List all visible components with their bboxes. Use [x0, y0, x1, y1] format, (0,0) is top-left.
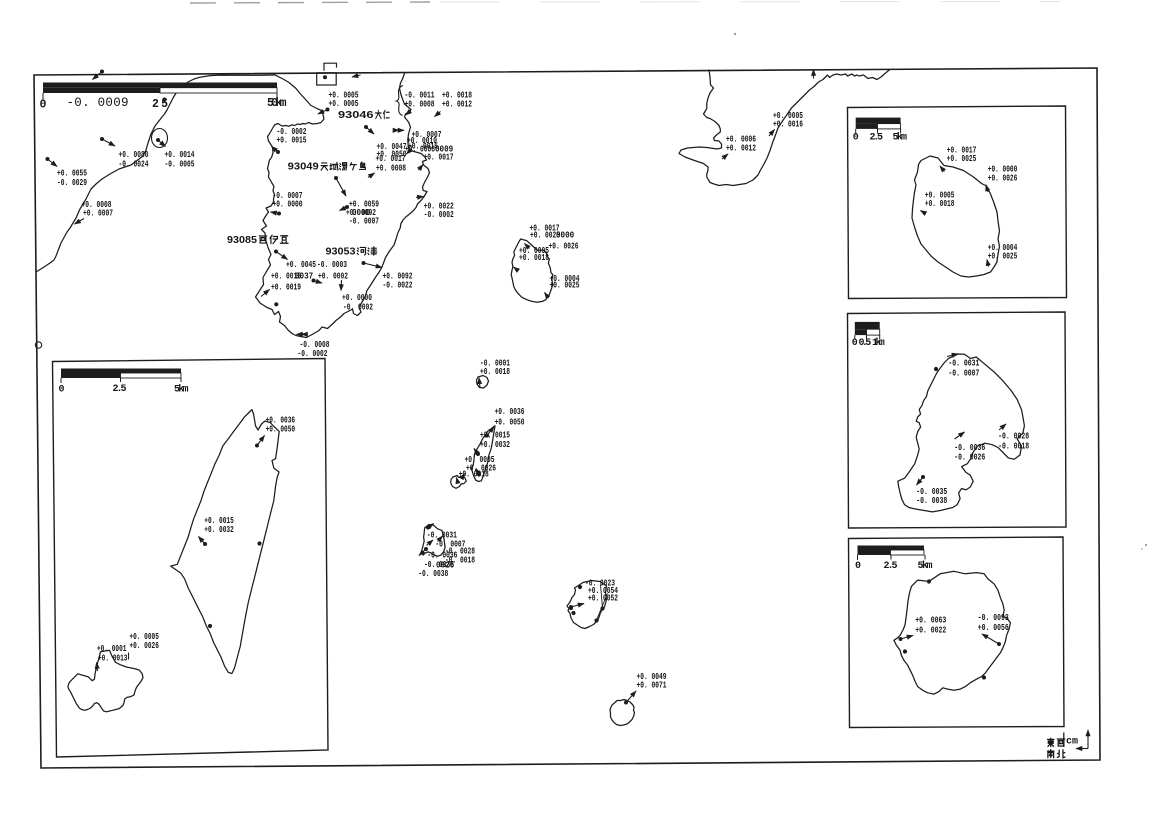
svg-text:+0. 0045: +0. 0045 [286, 259, 316, 270]
svg-text:-0. 0002: -0. 0002 [424, 209, 454, 220]
svg-text:-0. 0026: -0. 0026 [954, 452, 985, 463]
svg-text:+0. 0071: +0. 0071 [637, 680, 667, 691]
svg-text:+0. 0026: +0. 0026 [129, 640, 159, 651]
svg-text:+0. 0008: +0. 0008 [376, 163, 406, 174]
svg-text:+0. 0018: +0. 0018 [925, 198, 955, 209]
svg-text:-0. 0002: -0. 0002 [343, 302, 373, 313]
svg-text:+0. 0019: +0. 0019 [271, 282, 301, 293]
svg-text:93053: 93053 [326, 247, 356, 258]
svg-text:+0. 0025: +0. 0025 [947, 153, 977, 164]
svg-text:0: 0 [59, 385, 65, 396]
svg-text:-0. 0022: -0. 0022 [383, 280, 413, 291]
svg-text:-0. 0003: -0. 0003 [317, 259, 347, 270]
svg-text:+0. 0026: +0. 0026 [988, 173, 1018, 184]
svg-text:-0. 0009: -0. 0009 [67, 96, 129, 110]
svg-text:+0. 0012: +0. 0012 [726, 143, 756, 154]
svg-text:+0. 0032: +0. 0032 [480, 439, 510, 450]
svg-text:-0. 0038: -0. 0038 [418, 568, 448, 579]
svg-text:+0. 0050: +0. 0050 [495, 417, 525, 428]
svg-text:-0. 0018: -0. 0018 [998, 441, 1029, 452]
svg-text:2.5: 2.5 [870, 133, 884, 144]
svg-text:+0. 0025: +0. 0025 [550, 279, 580, 290]
svg-text:0037: 0037 [295, 271, 313, 282]
svg-text:+0. 0008: +0. 0008 [405, 98, 435, 109]
svg-text:93046: 93046 [338, 110, 374, 121]
svg-text:+0. 0050: +0. 0050 [266, 424, 296, 435]
svg-text:+0. 0017: +0. 0017 [424, 151, 454, 162]
svg-text:-0. 0007: -0. 0007 [349, 216, 379, 227]
svg-text:0: 0 [853, 133, 859, 144]
svg-text:0000: 0000 [556, 229, 574, 240]
svg-text:+0. 0032: +0. 0032 [204, 524, 234, 535]
svg-text:-0. 0002: -0. 0002 [298, 348, 328, 359]
svg-text:0: 0 [855, 561, 861, 572]
svg-text:50km: 50km [267, 97, 287, 110]
svg-text:+0. 0052: +0. 0052 [588, 593, 618, 604]
svg-text:+0. 0036: +0. 0036 [495, 406, 525, 417]
svg-text:2.5: 2.5 [113, 384, 127, 395]
svg-text:+0. 0000: +0. 0000 [273, 199, 303, 210]
svg-text:+0. 0018: +0. 0018 [459, 469, 489, 480]
svg-text:-0. 0038: -0. 0038 [916, 495, 947, 506]
svg-text:+0. 0056: +0. 0056 [978, 622, 1009, 633]
svg-text:+0. 0013: +0. 0013 [98, 653, 128, 664]
svg-text:5km: 5km [893, 132, 908, 144]
svg-text:+0. 0025: +0. 0025 [988, 251, 1018, 262]
svg-text:93049: 93049 [288, 162, 319, 173]
svg-text:cm: cm [1066, 737, 1078, 748]
svg-text:+0. 0016: +0. 0016 [773, 119, 803, 130]
svg-text:+0. 0026: +0. 0026 [549, 240, 579, 251]
svg-text:-0. 0005: -0. 0005 [165, 159, 195, 170]
svg-text:0: 0 [40, 99, 47, 112]
svg-text:-0. 0029: -0. 0029 [57, 177, 87, 188]
svg-text:+0. 0022: +0. 0022 [915, 624, 946, 635]
svg-text:+0. 0018: +0. 0018 [480, 366, 510, 377]
svg-text:-0. 0007: -0. 0007 [948, 368, 979, 379]
svg-text:+0. 0012: +0. 0012 [442, 98, 472, 109]
svg-text:93085: 93085 [227, 235, 257, 246]
svg-text:0 0.5 1km: 0 0.5 1km [852, 337, 885, 349]
svg-text:+0. 0007: +0. 0007 [83, 208, 113, 219]
svg-text:+0. 0015: +0. 0015 [277, 134, 307, 145]
svg-text:-0. 0024: -0. 0024 [119, 159, 149, 170]
svg-text:2.5: 2.5 [884, 561, 898, 572]
svg-text:+0. 0005: +0. 0005 [329, 98, 359, 109]
svg-text:5km: 5km [918, 560, 933, 572]
svg-text:5km: 5km [174, 384, 189, 396]
svg-text:+0. 0002: +0. 0002 [318, 271, 348, 282]
svg-text:+0. 0018: +0. 0018 [519, 252, 549, 263]
